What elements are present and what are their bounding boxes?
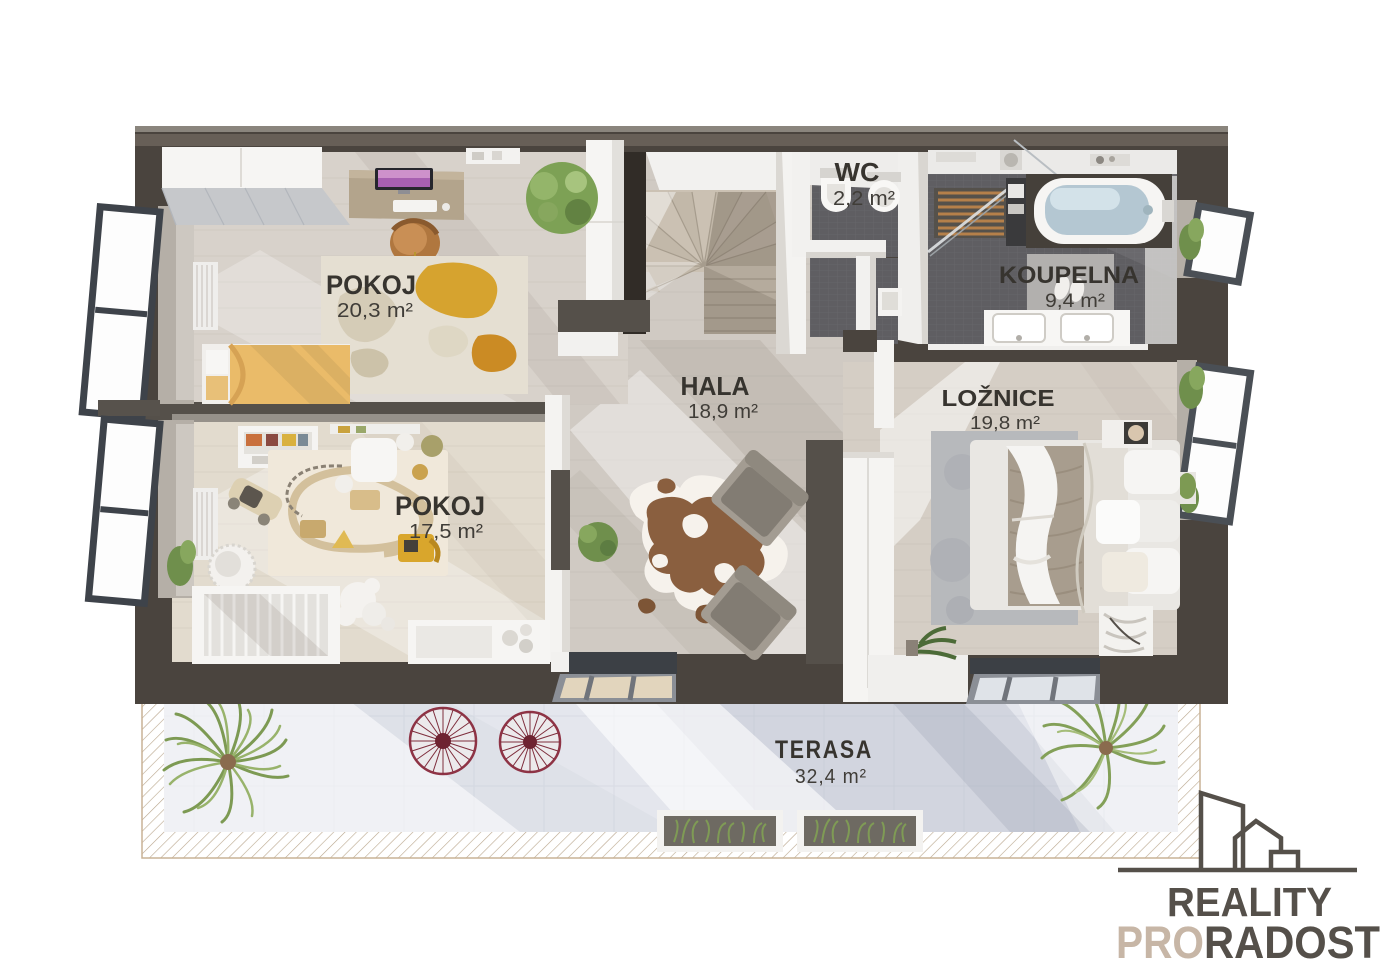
svg-text:LOŽNICE: LOŽNICE [942,384,1055,411]
svg-text:19,8 m²: 19,8 m² [970,412,1040,433]
svg-text:20,3 m²: 20,3 m² [337,299,413,322]
svg-text:WC: WC [835,157,880,187]
svg-text:KOUPELNA: KOUPELNA [999,262,1139,289]
svg-text:TERASA: TERASA [775,736,873,764]
svg-text:HALA: HALA [681,371,750,401]
svg-text:PRO: PRO [1116,917,1204,963]
svg-text:32,4 m²: 32,4 m² [795,765,867,788]
svg-text:RADOST: RADOST [1204,917,1380,963]
svg-text:POKOJ: POKOJ [326,270,416,300]
svg-text:2,2 m²: 2,2 m² [833,187,895,210]
svg-text:POKOJ: POKOJ [395,491,485,521]
svg-text:17,5 m²: 17,5 m² [409,520,483,543]
svg-text:18,9 m²: 18,9 m² [688,400,758,423]
svg-text:9,4 m²: 9,4 m² [1045,291,1105,312]
